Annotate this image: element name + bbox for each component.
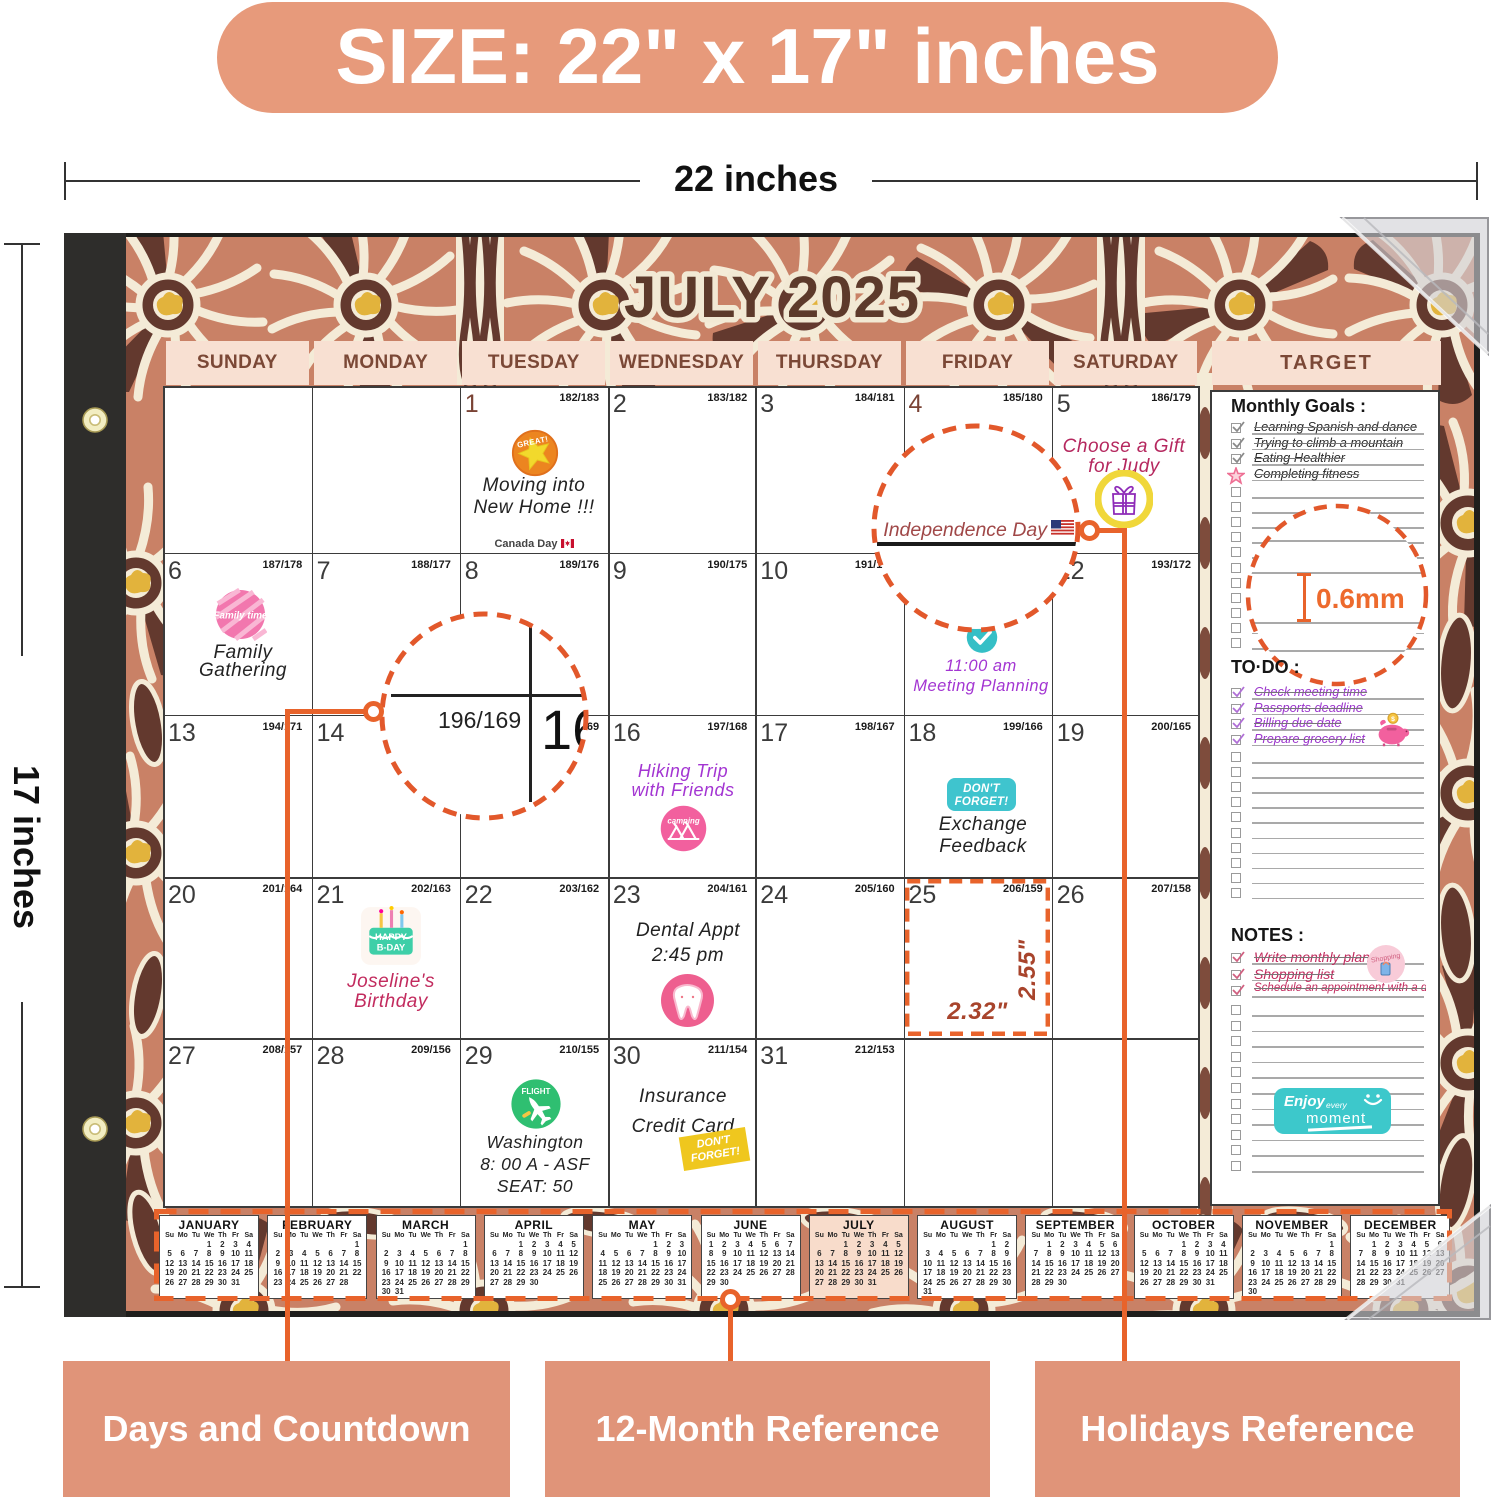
svg-text:JULY 2025: JULY 2025 xyxy=(624,265,920,330)
svg-text:B-DAY: B-DAY xyxy=(377,942,406,952)
svg-text:Family time: Family time xyxy=(214,610,267,621)
svg-text:camping: camping xyxy=(667,816,700,825)
svg-text:FLIGHT: FLIGHT xyxy=(522,1087,551,1096)
svg-text:$: $ xyxy=(1391,716,1395,723)
svg-text:HAPPY: HAPPY xyxy=(375,932,408,942)
